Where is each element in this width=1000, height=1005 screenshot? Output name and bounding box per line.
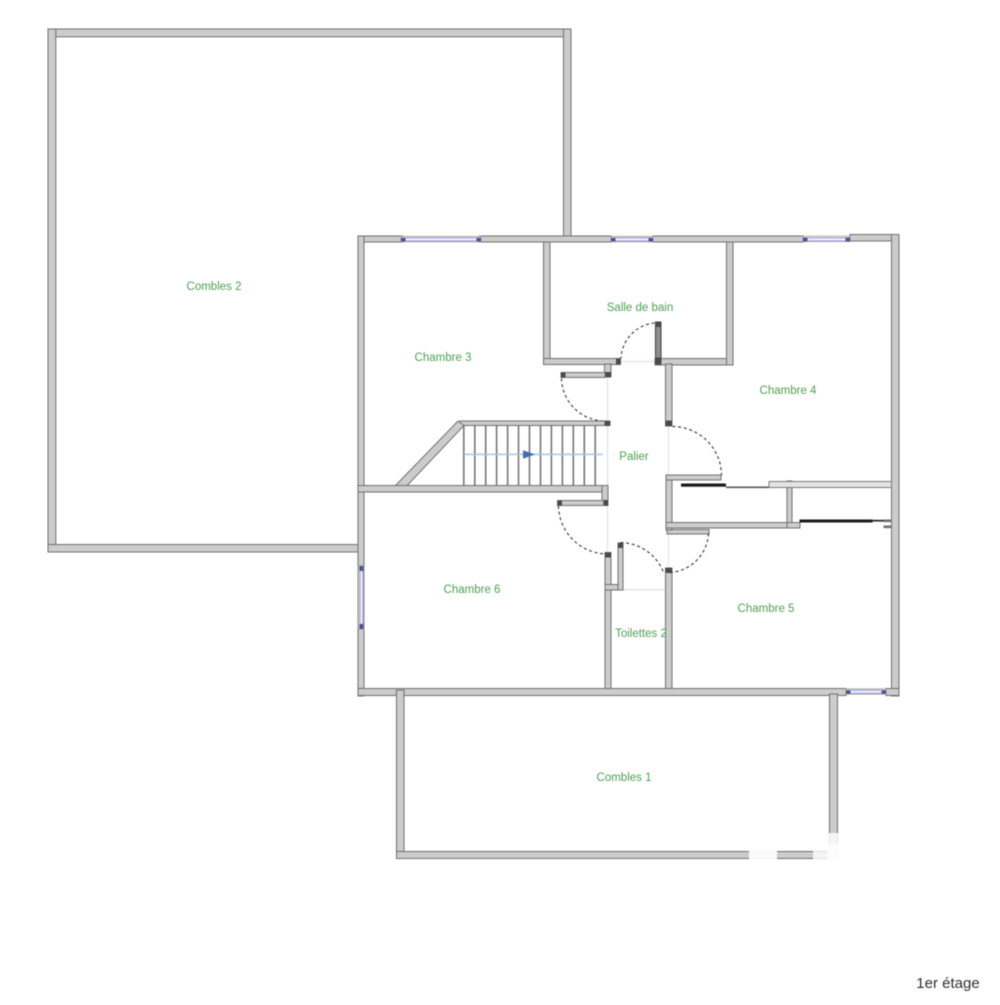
svg-text:Chambre 5: Chambre 5 [738,603,795,615]
svg-text:1er étage: 1er étage [916,975,979,992]
svg-text:Salle de bain: Salle de bain [607,302,674,314]
svg-text:Toilettes 2: Toilettes 2 [615,628,667,640]
svg-text:Chambre 3: Chambre 3 [415,352,472,364]
svg-text:Combles 1: Combles 1 [597,772,652,784]
svg-text:Chambre 4: Chambre 4 [760,385,817,397]
svg-text:Chambre 6: Chambre 6 [444,584,501,596]
svg-text:Combles 2: Combles 2 [187,281,242,293]
svg-text:Palier: Palier [619,451,649,463]
